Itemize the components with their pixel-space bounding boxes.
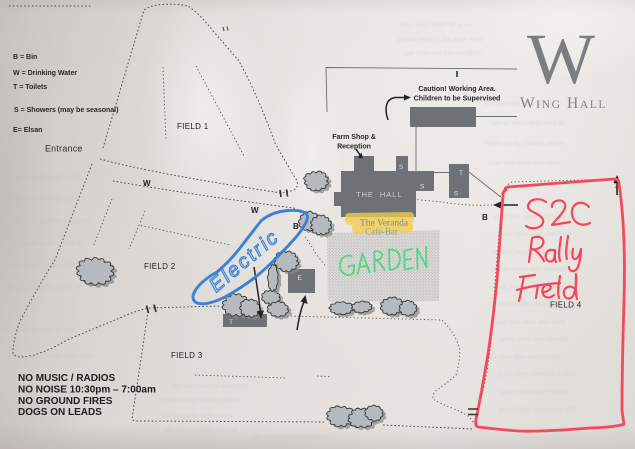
svg-text:site all about field area ok: site all about field area ok bbox=[491, 120, 565, 127]
svg-text:B = Bin: B = Bin bbox=[13, 53, 37, 61]
svg-text:E= Elsan: E= Elsan bbox=[13, 126, 42, 134]
svg-text:per from and the with pitch: per from and the with pitch bbox=[4, 196, 81, 203]
svg-text:please keep to the track ways: please keep to the track ways bbox=[8, 353, 94, 360]
svg-text:FIELD 2: FIELD 2 bbox=[144, 262, 176, 271]
svg-text:FIELD 4: FIELD 4 bbox=[550, 301, 582, 310]
svg-text:Entrance: Entrance bbox=[45, 144, 83, 154]
svg-text:all dogs kept on leads at: all dogs kept on leads at bbox=[13, 240, 83, 247]
svg-text:water point near the hall: water point near the hall bbox=[498, 389, 569, 396]
svg-text:site all about field area ok: site all about field area ok bbox=[2, 327, 76, 334]
svg-text:Children to be Supervised: Children to be Supervised bbox=[414, 95, 501, 103]
svg-text:S: S bbox=[420, 184, 425, 191]
svg-text:per from and the with pitch: per from and the with pitch bbox=[13, 218, 90, 225]
svg-text:W: W bbox=[143, 179, 151, 188]
svg-text:quiet time after dark here: quiet time after dark here bbox=[493, 319, 566, 326]
svg-text:WING HALL: WING HALL bbox=[520, 95, 607, 112]
svg-text:B: B bbox=[293, 222, 299, 231]
svg-text:FIELD 1: FIELD 1 bbox=[177, 122, 209, 131]
svg-text:FIELD 3: FIELD 3 bbox=[171, 351, 203, 360]
svg-text:water point near the hall: water point near the hall bbox=[498, 336, 569, 343]
svg-text:NO MUSIC / RADIOS: NO MUSIC / RADIOS bbox=[18, 373, 116, 384]
svg-text:W = Drinking Water: W = Drinking Water bbox=[13, 69, 77, 77]
svg-text:check out by midday please: check out by midday please bbox=[161, 397, 242, 404]
svg-text:site all about field area ok: site all about field area ok bbox=[7, 284, 81, 291]
svg-text:no cars after dark on this: no cars after dark on this bbox=[162, 413, 234, 420]
svg-text:Café-Bar: Café-Bar bbox=[365, 227, 398, 237]
svg-text:grass keep speed to 5 mph: grass keep speed to 5 mph bbox=[499, 406, 578, 413]
svg-text:per from and the with pitch: per from and the with pitch bbox=[252, 434, 329, 441]
svg-text:T: T bbox=[229, 319, 233, 326]
svg-text:per from and the with pitch: per from and the with pitch bbox=[5, 174, 82, 181]
svg-text:W: W bbox=[251, 206, 259, 215]
svg-text:no cars after dark on this: no cars after dark on this bbox=[490, 354, 562, 361]
svg-text:NO GROUND FIRES: NO GROUND FIRES bbox=[18, 396, 113, 407]
svg-text:NO NOISE 10:30pm – 7:00am: NO NOISE 10:30pm – 7:00am bbox=[18, 385, 156, 396]
svg-text:site all about field area ok: site all about field area ok bbox=[164, 427, 238, 434]
svg-text:no cars after dark on this: no cars after dark on this bbox=[4, 262, 76, 269]
svg-text:per from and the with pitch: per from and the with pitch bbox=[172, 383, 249, 390]
svg-text:quiet time after dark here: quiet time after dark here bbox=[488, 160, 561, 167]
svg-text:site all about field area ok: site all about field area ok bbox=[491, 266, 565, 273]
svg-text:per from and the with pitch: per from and the with pitch bbox=[405, 50, 482, 57]
svg-text:check out by midday please: check out by midday please bbox=[484, 140, 565, 147]
svg-text:please keep to the track ways: please keep to the track ways bbox=[398, 36, 484, 43]
svg-text:grass keep speed to 5 mph: grass keep speed to 5 mph bbox=[497, 371, 576, 378]
svg-text:fires must never be lit on: fires must never be lit on bbox=[401, 22, 472, 29]
svg-text:E: E bbox=[298, 275, 303, 282]
svg-text:T: T bbox=[459, 170, 463, 177]
svg-text:T = Toilets: T = Toilets bbox=[13, 83, 47, 91]
svg-text:THE HALL: THE HALL bbox=[356, 190, 403, 199]
svg-text:S = Showers (may be seasonal): S = Showers (may be seasonal) bbox=[14, 106, 119, 114]
svg-text:Caution! Working Area.: Caution! Working Area. bbox=[418, 85, 495, 93]
svg-text:W: W bbox=[527, 19, 595, 99]
svg-text:DOGS ON LEADS: DOGS ON LEADS bbox=[18, 407, 102, 418]
svg-text:S: S bbox=[399, 164, 404, 171]
svg-text:Reception: Reception bbox=[337, 143, 371, 151]
svg-text:S: S bbox=[454, 191, 459, 198]
svg-text:B: B bbox=[482, 213, 488, 222]
svg-text:Farm Shop &: Farm Shop & bbox=[332, 133, 376, 141]
